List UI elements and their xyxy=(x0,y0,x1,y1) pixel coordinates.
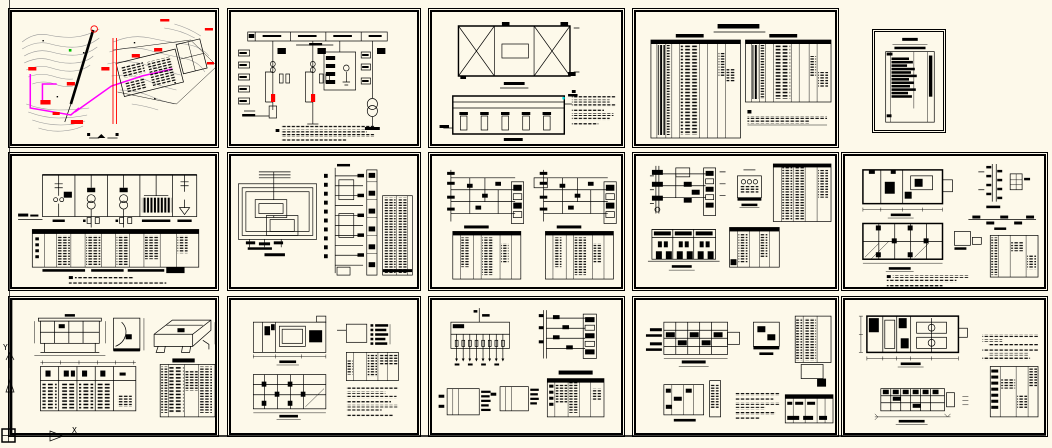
sheet-border xyxy=(430,154,623,289)
terminal-column xyxy=(367,170,377,275)
top-right-table xyxy=(773,164,831,222)
powerhouse-plan xyxy=(859,316,967,367)
small-detail xyxy=(954,231,981,249)
sheet-border xyxy=(843,154,1046,289)
notes-block xyxy=(887,275,969,286)
cad-canvas: Y X xyxy=(0,0,1052,448)
right-vertical-detail xyxy=(978,164,1030,208)
bottom-middle-table xyxy=(730,227,780,267)
sheet-layout-plans[interactable] xyxy=(227,296,421,437)
wiring-unit-2 xyxy=(534,170,616,279)
small-detail-middle xyxy=(753,322,779,355)
notes-block xyxy=(69,276,166,284)
distribution-drawing xyxy=(432,300,621,433)
console-isometric xyxy=(154,320,215,352)
console-schedule-table xyxy=(160,358,215,416)
bottom-right-table xyxy=(785,395,833,423)
protection-drawing xyxy=(636,156,835,287)
sheet-border xyxy=(634,10,837,146)
sheet-panel-wiring-pair[interactable] xyxy=(428,152,625,291)
table-notes xyxy=(747,110,827,125)
relay-blocks xyxy=(659,168,726,216)
roof-truss-plan xyxy=(458,22,579,88)
notes-block xyxy=(276,125,375,142)
small-schedule-drawing xyxy=(875,32,943,130)
sheet-border xyxy=(229,154,419,289)
right-schedule-table xyxy=(745,34,831,102)
panel-elevation xyxy=(648,229,720,270)
site-plan-red-marks xyxy=(28,19,214,124)
terminal-strip-2 xyxy=(491,387,539,411)
site-plan-contours xyxy=(22,24,209,131)
assembly-detail xyxy=(646,322,740,366)
right-dense-table xyxy=(383,196,413,275)
control-schematic xyxy=(539,310,597,358)
right-table xyxy=(990,235,1038,277)
feeder-4-generator xyxy=(361,41,385,130)
structure-drawing xyxy=(432,12,621,144)
feeder-3-station-service xyxy=(324,41,356,90)
lower-section-drawing xyxy=(875,389,969,425)
sheet-console-elevations[interactable] xyxy=(8,296,219,437)
sheet-border xyxy=(229,10,419,146)
bay-single-line-drawing xyxy=(12,156,215,287)
sheet-room-plans[interactable] xyxy=(841,152,1048,291)
sheet-title xyxy=(714,24,766,32)
room-plans-drawing xyxy=(845,156,1044,287)
left-callout xyxy=(18,214,42,220)
bay-schedule-table xyxy=(32,229,198,273)
sheet-grounding-and-control[interactable] xyxy=(227,152,421,291)
bus-band xyxy=(248,32,387,46)
top-right-detail xyxy=(337,324,390,345)
building-section xyxy=(440,94,578,141)
panel-wiring-drawing xyxy=(432,156,621,287)
sheet-border xyxy=(10,10,217,146)
section-mark xyxy=(87,133,118,138)
installation-drawing xyxy=(636,300,835,433)
single-line-drawing xyxy=(231,12,417,144)
sheet-schedule-tables[interactable] xyxy=(632,8,839,148)
lower-plan xyxy=(253,375,326,420)
panel-row-layout xyxy=(40,360,135,410)
control-riser xyxy=(324,164,364,275)
lower-room-plan xyxy=(863,223,943,271)
bottom-notes xyxy=(736,393,780,420)
console-drawing xyxy=(12,300,215,433)
terminal-strip-1 xyxy=(439,389,491,415)
below-frame-details xyxy=(53,217,192,228)
sheet-border xyxy=(10,154,217,289)
left-label-stack xyxy=(238,50,249,104)
sheet-border xyxy=(430,10,623,146)
sheet-distribution-box[interactable] xyxy=(428,296,625,437)
sheet-structure-plan-section[interactable] xyxy=(428,8,625,148)
vertical-bus-with-taps xyxy=(650,166,663,214)
stepped-values xyxy=(892,57,917,97)
tall-right-table xyxy=(795,316,831,387)
bus-and-bays xyxy=(42,175,196,217)
sheet-border xyxy=(634,298,837,435)
grounding-grid-plan xyxy=(238,172,316,256)
wiring-unit-1 xyxy=(447,170,524,279)
equipment-table xyxy=(990,367,1038,417)
sheet-border xyxy=(430,298,623,435)
sheet-powerhouse-plan[interactable] xyxy=(841,296,1048,437)
sheet-hv-single-line[interactable] xyxy=(227,8,421,148)
notes-block xyxy=(346,387,398,417)
bottom-right-table xyxy=(547,371,604,417)
right-notes xyxy=(982,334,1038,360)
sheet-bay-single-line[interactable] xyxy=(8,152,219,291)
site-plan-buildings xyxy=(115,39,209,97)
powerhouse-drawing xyxy=(845,300,1044,433)
sheet-border xyxy=(10,298,217,435)
sheet-border xyxy=(843,298,1046,435)
console-front-elevation xyxy=(34,314,105,355)
layout-plans-drawing xyxy=(231,300,417,433)
distribution-box-diagram xyxy=(451,308,510,365)
section-notes xyxy=(572,90,615,125)
bottom-right-table xyxy=(346,352,398,380)
bottom-left-detail xyxy=(664,381,721,422)
sheet-border xyxy=(634,154,837,289)
console-side-view xyxy=(114,318,144,351)
left-schedule-table xyxy=(651,34,741,138)
sheet-installation-details[interactable] xyxy=(632,296,839,437)
schedule-tables-drawing xyxy=(636,12,835,144)
upper-plan xyxy=(253,316,326,365)
sheet-border xyxy=(229,298,419,435)
horizontal-detail xyxy=(968,216,1036,230)
upper-room-plan xyxy=(863,170,953,218)
transformer-detail xyxy=(737,170,761,208)
sheet-border xyxy=(874,31,944,131)
site-plan-drawing xyxy=(12,12,215,144)
sheet-protection-details[interactable] xyxy=(632,152,839,291)
grounding-drawing xyxy=(231,156,417,287)
sheet-site-plan[interactable] xyxy=(8,8,219,148)
sheet-small-schedule[interactable] xyxy=(872,29,946,133)
